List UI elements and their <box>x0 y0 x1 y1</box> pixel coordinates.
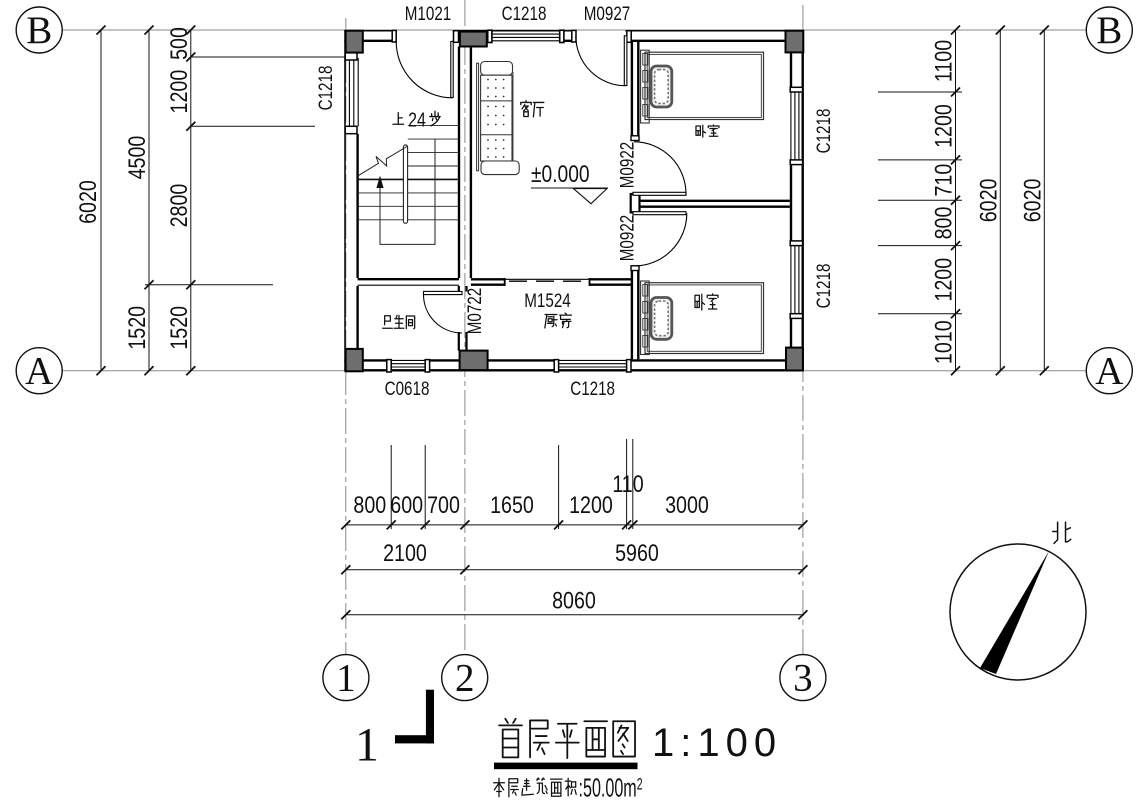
svg-text:1200: 1200 <box>569 491 613 518</box>
svg-text:1100: 1100 <box>930 40 957 82</box>
svg-text:6020: 6020 <box>1019 179 1046 223</box>
svg-text:C1218: C1218 <box>812 109 834 154</box>
svg-text:700: 700 <box>427 491 460 518</box>
svg-text:1010: 1010 <box>930 320 957 364</box>
svg-text:1200: 1200 <box>930 104 957 148</box>
svg-text:5960: 5960 <box>615 539 659 566</box>
svg-text:1:100: 1:100 <box>652 721 782 765</box>
svg-text:1200: 1200 <box>930 258 957 302</box>
svg-text:1520: 1520 <box>123 306 150 350</box>
svg-text:1520: 1520 <box>165 306 192 350</box>
svg-text:6020: 6020 <box>975 179 1002 223</box>
svg-text:M0922: M0922 <box>616 215 638 261</box>
svg-text:8060: 8060 <box>552 587 596 614</box>
svg-text:710: 710 <box>930 164 957 197</box>
svg-text::50.00m2: :50.00m2 <box>579 772 643 802</box>
svg-text:M1021: M1021 <box>405 2 451 24</box>
svg-text:2: 2 <box>455 657 475 700</box>
svg-text:1650: 1650 <box>490 491 534 518</box>
svg-text:C1218: C1218 <box>314 66 336 111</box>
svg-text:1: 1 <box>355 719 379 772</box>
svg-text:6020: 6020 <box>74 180 101 224</box>
svg-text:M1524: M1524 <box>524 289 571 311</box>
svg-text:3: 3 <box>793 657 813 700</box>
svg-text:C1218: C1218 <box>570 377 615 399</box>
svg-text:M0922: M0922 <box>616 142 638 188</box>
svg-text:800: 800 <box>353 491 386 518</box>
svg-text:C0618: C0618 <box>385 377 430 399</box>
svg-text:24: 24 <box>408 109 426 131</box>
svg-text:B: B <box>26 9 52 52</box>
svg-text:C1218: C1218 <box>502 2 547 24</box>
svg-text:800: 800 <box>930 207 957 240</box>
svg-text:A: A <box>1095 350 1123 393</box>
svg-text:M0927: M0927 <box>584 2 630 24</box>
svg-text:C1218: C1218 <box>812 264 834 309</box>
svg-text:B: B <box>1096 9 1122 52</box>
svg-text:110: 110 <box>612 470 643 497</box>
svg-text:1200: 1200 <box>165 70 192 114</box>
svg-text:M0722: M0722 <box>463 288 485 334</box>
svg-text:2100: 2100 <box>383 539 427 566</box>
svg-text:4500: 4500 <box>123 136 150 180</box>
svg-text:1: 1 <box>336 657 356 700</box>
svg-text:2800: 2800 <box>165 184 192 228</box>
svg-text:500: 500 <box>165 27 192 60</box>
svg-text:600: 600 <box>390 491 423 518</box>
svg-text:A: A <box>25 350 53 393</box>
svg-text:3000: 3000 <box>665 491 709 518</box>
svg-text:±0.000: ±0.000 <box>531 160 590 188</box>
